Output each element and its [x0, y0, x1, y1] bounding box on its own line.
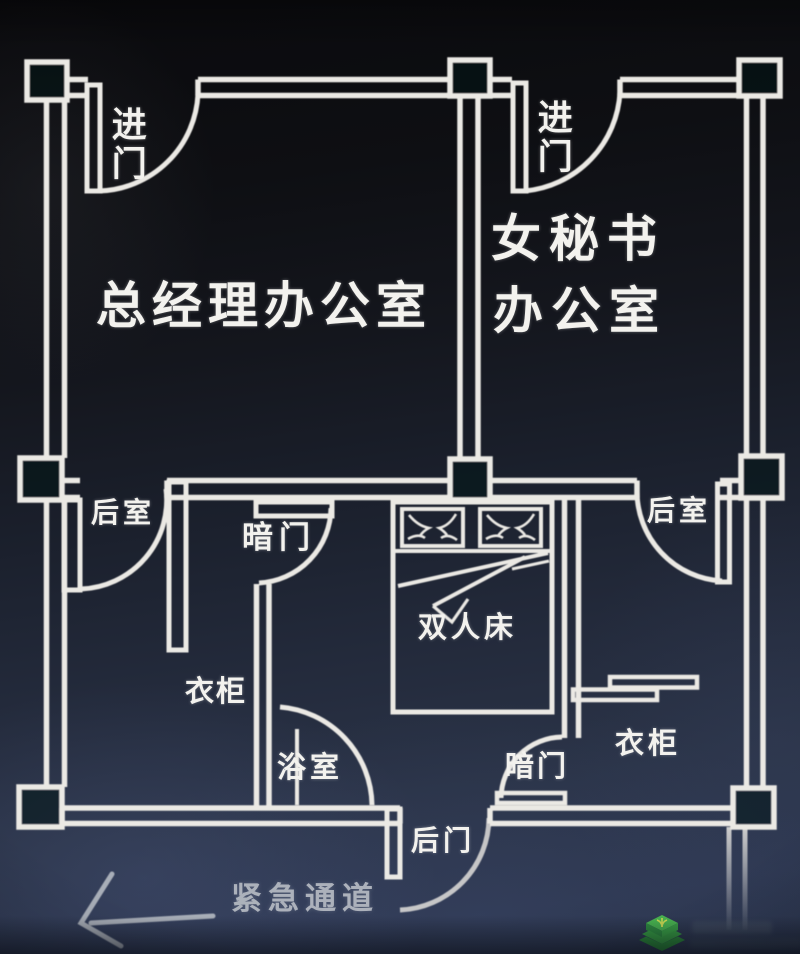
door-leaf — [513, 83, 526, 191]
emergency-arrow-icon — [81, 874, 213, 946]
floorplan-photo: 总经理办公室 女秘书 办公室 进门 进门 后室 后室 暗门 双人床 衣柜 浴室 … — [0, 0, 800, 954]
label-gm-office: 总经理办公室 — [96, 280, 432, 333]
label-double-bed: 双人床 — [418, 613, 517, 643]
office-divider-wall — [460, 96, 478, 459]
pillow-symbol — [480, 509, 541, 546]
pillar — [27, 62, 67, 100]
pillar — [19, 787, 62, 827]
label-bathroom: 浴室 — [277, 753, 343, 783]
pillar — [739, 60, 780, 96]
pillar — [450, 60, 490, 96]
door-leaf — [387, 809, 400, 877]
label-secretary-office-1: 女秘书 — [491, 213, 665, 266]
label-hidden-door-upper: 暗门 — [242, 522, 316, 555]
pillar — [450, 459, 490, 500]
bathroom-wall — [257, 584, 270, 806]
pillar — [20, 458, 62, 500]
label-back-door: 后门 — [411, 826, 475, 855]
bed-side-wall — [565, 500, 579, 738]
right-wall — [747, 96, 764, 788]
top-wall — [67, 80, 739, 96]
hidden-door-leaf — [256, 502, 332, 516]
middle-wall — [62, 481, 742, 498]
door-leaf — [87, 85, 100, 191]
label-secretary-office-2: 办公室 — [493, 285, 667, 338]
watermark-logo-icon — [639, 915, 685, 951]
left-wall — [47, 100, 65, 787]
pillar — [741, 456, 782, 498]
wardrobe-right-symbol — [573, 677, 697, 700]
pillow-symbol — [402, 509, 463, 546]
label-wardrobe-left: 衣柜 — [185, 677, 247, 707]
wardrobe-bar — [610, 677, 697, 688]
wardrobe-left-symbol — [169, 482, 186, 650]
hidden-door-leaf — [497, 793, 565, 803]
label-emergency-passage: 紧急通道 — [231, 883, 379, 916]
label-back-room-left: 后室 — [91, 498, 155, 527]
door-leaf — [64, 500, 80, 590]
label-entrance-left: 进门 — [107, 106, 144, 184]
bed-outline — [393, 502, 552, 712]
label-entrance-right: 进门 — [533, 99, 570, 177]
label-hidden-door-lower: 暗门 — [505, 752, 569, 782]
label-back-room-right: 后室 — [647, 496, 711, 525]
double-bed-symbol — [393, 502, 552, 712]
label-wardrobe-right: 衣柜 — [615, 729, 681, 759]
watermark-text-blur — [690, 921, 800, 949]
right-wall-tail — [729, 827, 745, 930]
pillar — [733, 788, 774, 827]
wardrobe-bar — [573, 690, 657, 701]
